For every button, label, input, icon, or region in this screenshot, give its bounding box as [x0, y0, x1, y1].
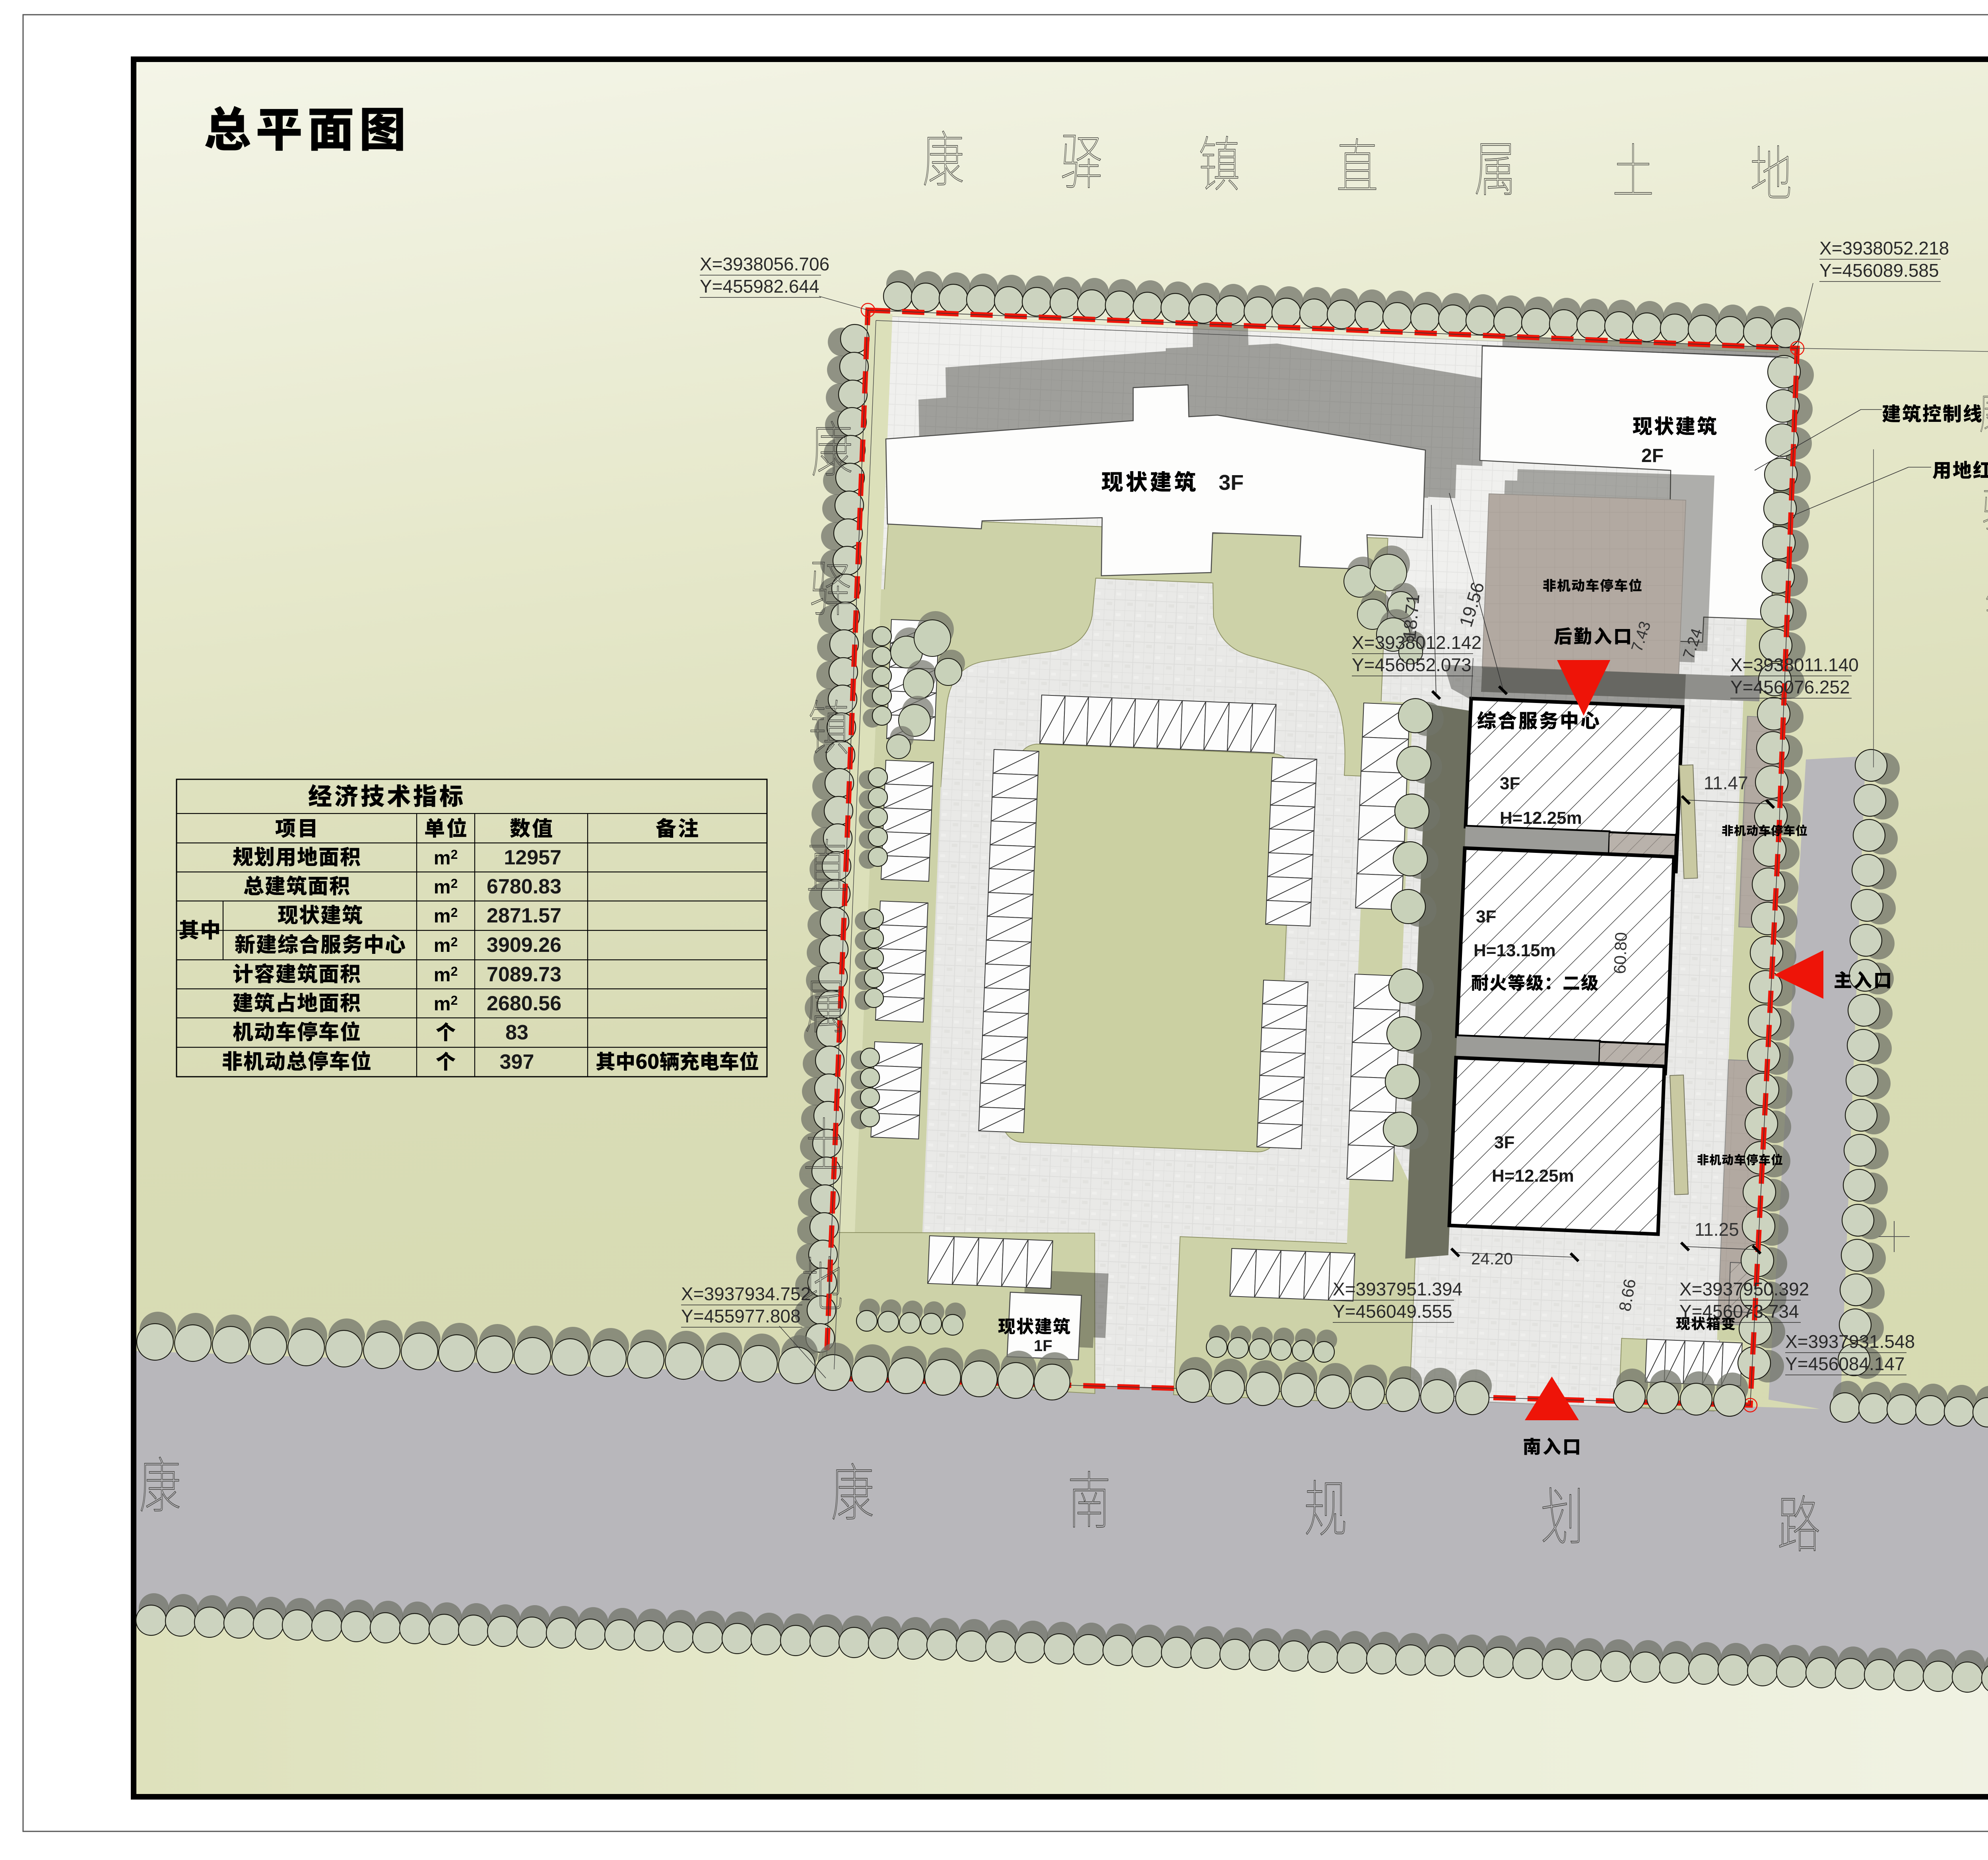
svg-text:83: 83 — [505, 1021, 528, 1044]
svg-text:Y=456089.585: Y=456089.585 — [1819, 260, 1939, 281]
svg-text:X=3938056.706: X=3938056.706 — [700, 254, 829, 274]
svg-text:X=3937951.394: X=3937951.394 — [1333, 1279, 1462, 1299]
svg-text:Y=456049.555: Y=456049.555 — [1333, 1301, 1452, 1322]
svg-text:Y=456084.147: Y=456084.147 — [1785, 1353, 1905, 1374]
svg-text:397: 397 — [500, 1050, 534, 1074]
svg-text:6780.83: 6780.83 — [487, 875, 561, 898]
svg-text:X=3938052.218: X=3938052.218 — [1819, 238, 1949, 258]
svg-text:60.80: 60.80 — [1610, 932, 1631, 975]
svg-text:X=3937934.752: X=3937934.752 — [681, 1283, 811, 1304]
svg-text:Y=455982.644: Y=455982.644 — [700, 276, 819, 297]
svg-text:3F: 3F — [1219, 471, 1244, 495]
svg-text:7089.73: 7089.73 — [487, 963, 561, 986]
svg-text:2871.57: 2871.57 — [487, 904, 561, 927]
svg-text:Y=455977.808: Y=455977.808 — [681, 1306, 801, 1326]
svg-text:X=3937931.548: X=3937931.548 — [1785, 1331, 1915, 1352]
svg-text:3F: 3F — [1500, 774, 1520, 793]
svg-text:Y=456073.734: Y=456073.734 — [1679, 1301, 1799, 1322]
svg-text:H=12.25m: H=12.25m — [1492, 1166, 1574, 1186]
svg-text:H=13.15m: H=13.15m — [1474, 941, 1556, 960]
svg-text:H=12.25m: H=12.25m — [1500, 808, 1582, 828]
svg-text:3F: 3F — [1494, 1133, 1514, 1152]
svg-text:11.25: 11.25 — [1695, 1219, 1739, 1240]
svg-text:3F: 3F — [1476, 907, 1496, 926]
svg-text:3909.26: 3909.26 — [487, 934, 561, 957]
svg-text:24.20: 24.20 — [1471, 1249, 1513, 1268]
svg-text:2F: 2F — [1641, 445, 1664, 466]
svg-text:1F: 1F — [1034, 1337, 1052, 1355]
svg-text:Y=456076.252: Y=456076.252 — [1730, 677, 1850, 697]
svg-text:X=3938011.140: X=3938011.140 — [1730, 654, 1859, 675]
svg-text:Y=456052.073: Y=456052.073 — [1352, 654, 1472, 675]
svg-text:18.71: 18.71 — [1399, 593, 1423, 641]
svg-text:2680.56: 2680.56 — [487, 992, 561, 1015]
svg-text:12957: 12957 — [504, 846, 561, 869]
svg-text:X=3937950.392: X=3937950.392 — [1679, 1279, 1809, 1299]
svg-text:11.47: 11.47 — [1704, 773, 1748, 793]
